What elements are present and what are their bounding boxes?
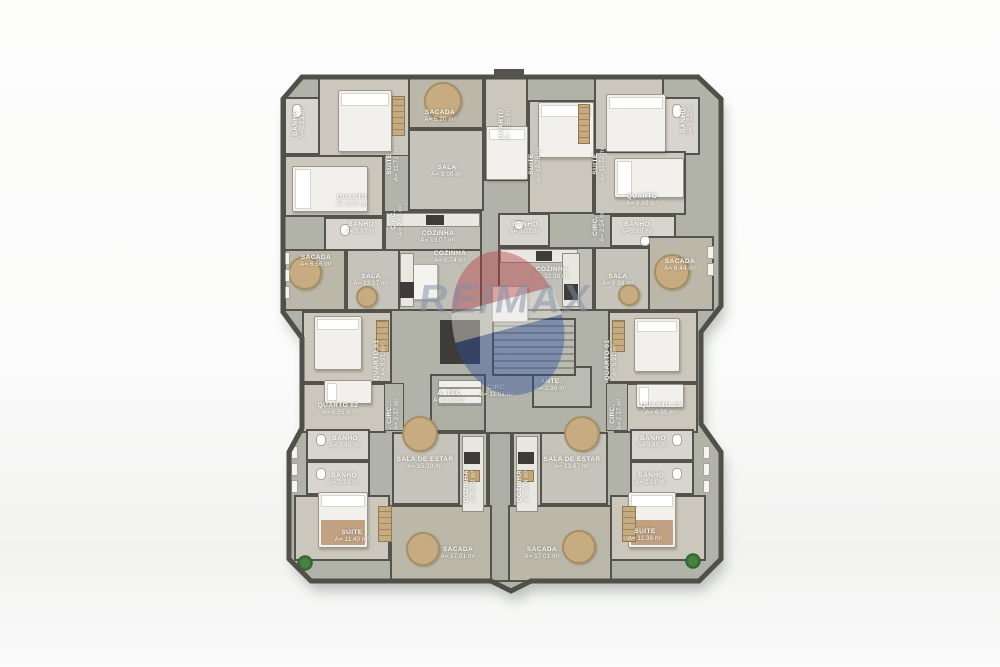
room-label: SACADAA= 17.01 m² [524, 546, 559, 562]
railing-slat [291, 463, 298, 476]
room-label: A. TÉCA= 2.14 m² [433, 390, 465, 406]
railing-slat [707, 246, 714, 259]
toilet-icon [672, 468, 682, 480]
railing-slat [291, 480, 298, 493]
balcony-table-icon [562, 530, 596, 564]
room-label: QUARTO 01A= 9.91 m² [373, 340, 389, 381]
room-label: COZINHAA= 8.74 m² [434, 250, 466, 266]
toilet-icon [672, 434, 682, 446]
dining-table-icon [402, 416, 438, 452]
balcony-table-icon [406, 532, 440, 566]
room-label: SALAA= 9.38 m² [602, 273, 634, 289]
room-sacada-bl [390, 505, 492, 582]
wardrobe-icon [578, 104, 590, 144]
room-label: QUARTO 02A= 6.95 m² [641, 402, 682, 418]
room-label: BANHOA= 2.91 m² [635, 472, 667, 488]
room-label: SACADAA= 17.01 m² [440, 546, 475, 562]
room-label: CIRC.A= 2.54 m² [390, 204, 406, 236]
bed-icon [314, 316, 362, 370]
room-label: BANHOA= 3.45 m² [329, 435, 361, 451]
bed-icon [606, 94, 666, 152]
room-label: QUARTOA= 9.90 m² [336, 194, 368, 210]
room-label: SUITEA= 11.40 m² [335, 529, 370, 545]
room-label: BANHOA= 2.88 m² [621, 221, 653, 237]
railing-slat [283, 269, 290, 282]
plant-icon [297, 555, 313, 571]
coffee-table-icon [356, 286, 378, 308]
dining-table-icon [564, 416, 600, 452]
room-label: BANHOA= 3.45 m² [637, 435, 669, 451]
room-label: SUITEA= 11.38 m² [628, 528, 663, 544]
railing-slat [291, 446, 298, 459]
room-label: BANHOA= 2.87 m² [345, 221, 377, 237]
bed-icon [338, 90, 392, 152]
room-label: SUITEA= 11.72 m² [386, 147, 402, 182]
toilet-icon [640, 236, 650, 246]
floorplan-render: BANHOA= 3.23 m² SUITEA= 11.72 m² QUARTOA… [0, 0, 1000, 667]
room-label: COZINHAA= 5.72 m² [463, 470, 479, 502]
room-label: SACADAA= 6.44 m² [664, 258, 696, 274]
room-label: QUARTOA= 9.59 m² [498, 108, 514, 140]
bed-icon [634, 318, 680, 372]
room-label: COZINHAA= 5.44 m² [516, 470, 532, 502]
stove-icon [536, 251, 552, 261]
wardrobe-icon [392, 96, 405, 136]
room-label: BANHOA= 3.02 m² [509, 221, 541, 237]
room-label: BANHOA= 3.23 m² [292, 107, 308, 139]
room-label: CIRC.A= 2.37 m² [386, 398, 402, 430]
railing-slat [283, 252, 290, 265]
room-label: SALA DE ESTARA= 15.39 m² [397, 456, 454, 472]
stove-icon [426, 215, 444, 225]
room-label: BANHOA= 2.99 m² [328, 472, 360, 488]
room-sacada-br [508, 505, 612, 582]
bed-icon [324, 380, 372, 404]
room-label: SALA DE ESTARA= 13.67 m² [544, 456, 601, 472]
railing-slat [703, 463, 710, 476]
stove-icon [518, 452, 534, 464]
stove-icon [400, 282, 414, 298]
room-label: SALAA= 8.00 m² [431, 164, 463, 180]
room-label: SACADAA= 6.56 m² [300, 254, 332, 270]
room-label: SUITEA= 11.72 m² [592, 147, 608, 182]
railing-slat [703, 480, 710, 493]
room-label: COZINHAA= 13.07 m² [420, 230, 455, 246]
entrance-door-icon [494, 69, 524, 78]
stove-icon [464, 452, 480, 464]
railing-slat [707, 263, 714, 276]
wardrobe-icon [378, 506, 392, 542]
room-label: SUITEA= 12.79 m² [528, 146, 544, 181]
kitchen-counter-icon [400, 253, 414, 307]
railing-slat [283, 286, 290, 299]
room-label: SACADAA= 5.20 m² [424, 109, 456, 125]
toilet-icon [316, 434, 326, 446]
room-label: QUARTOA= 9.90 m² [626, 193, 658, 209]
room-label: CIRC.A= 2.37 m² [609, 398, 625, 430]
room-label: QUARTO 02A= 6.95 m² [318, 402, 359, 418]
room-label: CIRC.A= 2.54 m² [592, 210, 608, 242]
watermark-brand: RE/MAX [416, 278, 596, 323]
room-label: BANHOA= 3.22 m² [680, 104, 696, 136]
room-label: SALAA= 13.17 m² [353, 273, 388, 289]
plant-icon [685, 553, 701, 569]
railing-slat [703, 446, 710, 459]
room-label: QUARTO 01A= 9.91 m² [604, 340, 620, 381]
toilet-icon [316, 468, 326, 480]
